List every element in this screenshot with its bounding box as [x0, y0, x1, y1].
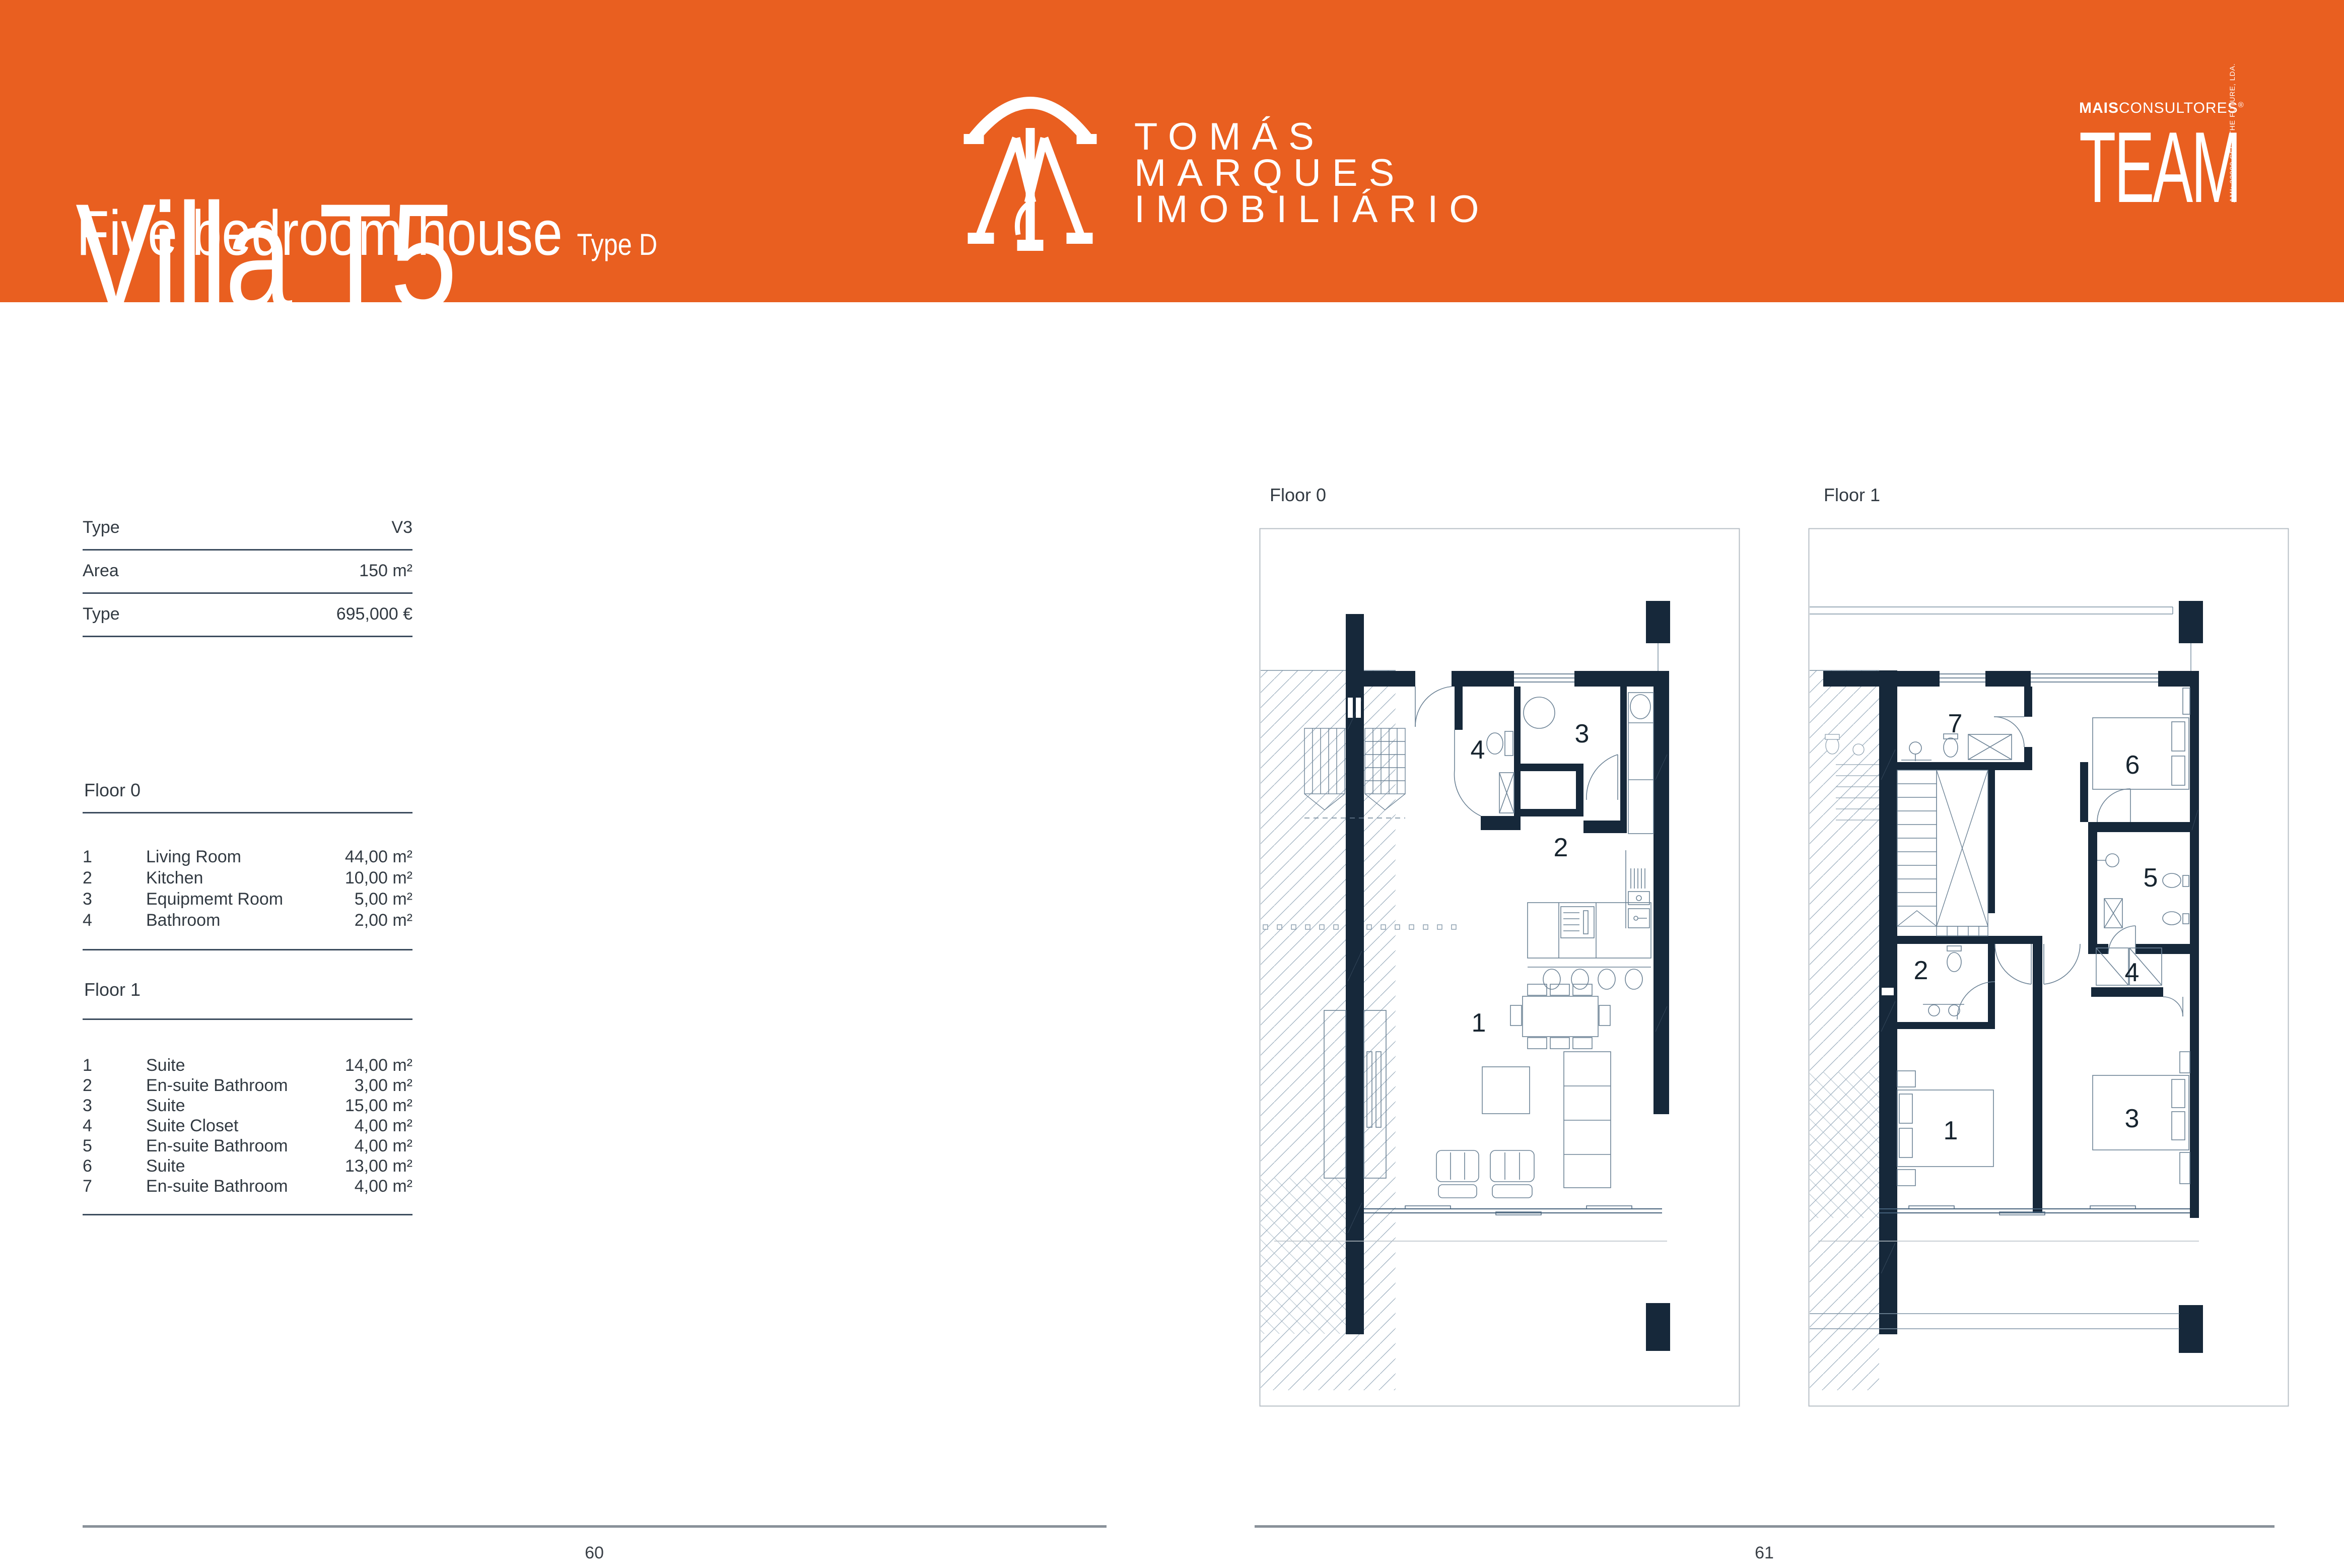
floor1-plan: 1 2 3 4 5 6 7	[1808, 528, 2289, 1407]
room-label-closet4: 4	[2125, 958, 2140, 987]
spec-value: V3	[391, 518, 412, 537]
page-subtitle-row: Five bedroom house Type D	[77, 200, 657, 266]
closet4	[2096, 948, 2183, 1016]
suite6	[2093, 688, 2190, 822]
dining-table-icon	[1523, 996, 1598, 1037]
toilet-icon	[1947, 952, 1961, 972]
kitchen-island	[1528, 903, 1651, 989]
room-label-bathroom: 4	[1471, 735, 1485, 765]
spec-label: Area	[83, 561, 119, 581]
spec-row-price: Type 695,000 €	[83, 592, 412, 637]
spec-row-area: Area 150 m²	[83, 549, 412, 594]
room-label-kitchen: 2	[1554, 833, 1568, 862]
room-number: 3	[83, 1096, 146, 1116]
coffee-table-icon	[1482, 1067, 1530, 1114]
chair-icon	[1573, 984, 1592, 995]
island-hob-icon	[1561, 907, 1594, 938]
room-row: 2 Kitchen 10,00 m²	[83, 867, 412, 889]
room-label-bath5: 5	[2144, 863, 2158, 893]
pillow-icon	[2172, 722, 2185, 751]
chair-icon	[1510, 1005, 1522, 1026]
room-area: 10,00 m²	[345, 868, 412, 888]
team-logo: MAISCONSULTORES® TEAM	[2079, 100, 2344, 216]
room-area: 4,00 m²	[355, 1116, 412, 1136]
spec-label: Type	[83, 604, 120, 624]
toilet-icon	[2163, 873, 2181, 888]
floor0-heading: Floor 0	[84, 780, 141, 801]
room-area: 13,00 m²	[345, 1156, 412, 1176]
room-area: 4,00 m²	[355, 1136, 412, 1156]
type-tag: Type D	[577, 227, 657, 262]
room-row: 3 Suite 15,00 m²	[83, 1095, 412, 1116]
room-label-bath2: 2	[1914, 956, 1928, 985]
chair-icon	[1528, 1038, 1547, 1049]
entry-door	[1415, 687, 1452, 727]
windows	[1940, 674, 2158, 682]
bed-icon	[2093, 718, 2189, 789]
room-area: 15,00 m²	[345, 1096, 412, 1116]
room-row: 3 Equipmemt Room 5,00 m²	[83, 889, 412, 910]
room-row: 1 Living Room 44,00 m²	[83, 846, 412, 867]
room-area: 3,00 m²	[355, 1076, 412, 1096]
dining-set	[1510, 984, 1610, 1049]
bidet-icon	[2163, 912, 2181, 925]
room-name: En-suite Bathroom	[146, 1076, 355, 1096]
room-row: 4 Bathroom 2,00 m²	[83, 910, 412, 931]
hatch-zone	[1810, 670, 1879, 1390]
room-row: 1 Suite 14,00 m²	[83, 1055, 412, 1076]
chair-icon	[1550, 984, 1569, 995]
armchair-icon	[1436, 1150, 1479, 1182]
bathroom2	[1923, 946, 1995, 1019]
room-number: 1	[83, 1056, 146, 1075]
sink-icon	[1909, 742, 1921, 754]
room-row: 5 En-suite Bathroom 4,00 m²	[83, 1135, 412, 1156]
spec-row-type: Type V3	[83, 506, 412, 551]
toilet-icon	[1487, 733, 1503, 754]
chair-icon	[1599, 1005, 1610, 1026]
room-number: 7	[83, 1177, 146, 1196]
room-number: 1	[83, 847, 146, 867]
team-logo-word: TEAM	[2079, 120, 2240, 216]
room-label-equipment: 3	[1575, 719, 1590, 748]
brand-line-3: IMOBILIÁRIO	[1134, 191, 1490, 228]
boiler-icon	[1524, 697, 1555, 728]
wardrobe-icon	[2183, 688, 2190, 714]
room-name: En-suite Bathroom	[146, 1177, 355, 1196]
brand-line-2: MARQUES	[1134, 155, 1490, 191]
room-row: 2 En-suite Bathroom 3,00 m²	[83, 1075, 412, 1096]
sink-icon	[2106, 854, 2119, 867]
room-label-bath7: 7	[1948, 709, 1963, 738]
room-row: 7 En-suite Bathroom 4,00 m²	[83, 1176, 412, 1197]
room-name: Living Room	[146, 847, 345, 867]
room-number: 4	[83, 1116, 146, 1136]
nightstand-icon	[1897, 1170, 1915, 1186]
nightstand-icon	[2180, 1052, 2190, 1073]
room-number: 4	[83, 911, 146, 930]
floor1-plan-label: Floor 1	[1824, 485, 1880, 506]
chair-icon	[1550, 1038, 1569, 1049]
room-name: Suite	[146, 1056, 345, 1075]
stool-icon	[1571, 969, 1589, 989]
spec-label: Type	[83, 518, 120, 537]
header-band: Villa T5 Five bedroom house Type D TOMÁS…	[0, 0, 2344, 302]
room-area: 2,00 m²	[355, 911, 412, 930]
room-number: 2	[83, 1076, 146, 1096]
stairs	[1897, 770, 1988, 936]
floor0-plan: 1 2 3 4	[1259, 528, 1740, 1407]
divider	[83, 812, 412, 813]
divider	[83, 1214, 412, 1215]
room-number: 5	[83, 1136, 146, 1156]
room-label-suite1: 1	[1944, 1116, 1958, 1145]
room-name: Suite	[146, 1096, 345, 1116]
footer-rule-left	[83, 1525, 1107, 1528]
roof-edge	[1810, 607, 2191, 671]
room-area: 4,00 m²	[355, 1177, 412, 1196]
brand-line-1: TOMÁS	[1134, 119, 1490, 155]
room-number: 6	[83, 1156, 146, 1176]
mirrored-sink-icon	[1853, 744, 1864, 755]
page-number-right: 61	[1749, 1543, 1779, 1563]
nightstand-icon	[2180, 1152, 2190, 1184]
room-area: 44,00 m²	[345, 847, 412, 867]
toilet-icon	[1944, 738, 1958, 757]
stool-icon	[1625, 969, 1642, 989]
spec-value: 150 m²	[359, 561, 412, 581]
room-name: Bathroom	[146, 911, 355, 930]
wall-notch	[1882, 988, 1894, 995]
walls	[1823, 601, 2203, 1353]
toilet-tank-icon	[1505, 731, 1513, 756]
laundry-sink-icon	[1630, 695, 1650, 719]
equipment-room3	[1524, 697, 1618, 800]
footer-rule-right	[1255, 1525, 2274, 1528]
room-row: 4 Suite Closet 4,00 m²	[83, 1115, 412, 1136]
armchair-icon	[1490, 1150, 1534, 1182]
floor1-heading: Floor 1	[84, 979, 141, 1000]
spec-value: 695,000 €	[336, 604, 412, 624]
stool-icon	[1598, 969, 1615, 989]
room-area: 14,00 m²	[345, 1056, 412, 1075]
page-number-left: 60	[579, 1543, 609, 1563]
wall-texture	[1348, 699, 1667, 1233]
kitchen-counters	[1626, 693, 1653, 928]
bed-icon	[2093, 1075, 2189, 1150]
brand-wordmark: TOMÁS MARQUES IMOBILIÁRIO	[1134, 119, 1490, 228]
suite3	[2093, 1052, 2190, 1184]
pillow-icon	[1899, 1094, 1912, 1123]
pillow-icon	[1899, 1128, 1912, 1157]
room-name: Equipmemt Room	[146, 890, 355, 909]
bathroom7	[1901, 717, 2024, 761]
stool-icon	[1543, 969, 1560, 989]
chair-icon	[1528, 984, 1547, 995]
windows	[1514, 674, 1574, 682]
room-number: 2	[83, 868, 146, 888]
sofa-sectional-icon	[1564, 1052, 1611, 1188]
chair-icon	[1573, 1038, 1592, 1049]
tm-monogram-icon	[963, 84, 1097, 251]
divider	[83, 949, 412, 950]
sink-icon	[1928, 1005, 1940, 1016]
registered-icon: ®	[2238, 101, 2244, 109]
divider	[83, 1018, 412, 1020]
room-row: 6 Suite 13,00 m²	[83, 1155, 412, 1177]
floor0-plan-label: Floor 0	[1270, 485, 1326, 506]
room-name: Suite Closet	[146, 1116, 355, 1136]
room-label-suite3: 3	[2125, 1104, 2140, 1133]
room-name: En-suite Bathroom	[146, 1136, 355, 1156]
room-area: 5,00 m²	[355, 890, 412, 909]
pillow-icon	[2172, 756, 2185, 785]
team-logo-sidetext: AMI: 23990 SEED THE FUTURE, LDA.	[2228, 63, 2236, 202]
nightstand-icon	[1897, 1071, 1915, 1087]
pillow-icon	[2172, 1112, 2185, 1140]
room-name: Suite	[146, 1156, 345, 1176]
room-label-suite6: 6	[2125, 751, 2140, 780]
page-subtitle: Five bedroom house	[77, 200, 563, 266]
room-name: Kitchen	[146, 868, 345, 888]
room-number: 3	[83, 890, 146, 909]
pillow-icon	[2172, 1079, 2185, 1108]
hatch-zone	[1261, 670, 1396, 1390]
room-label-living: 1	[1472, 1008, 1486, 1038]
cooktop-icon	[1631, 868, 1645, 889]
